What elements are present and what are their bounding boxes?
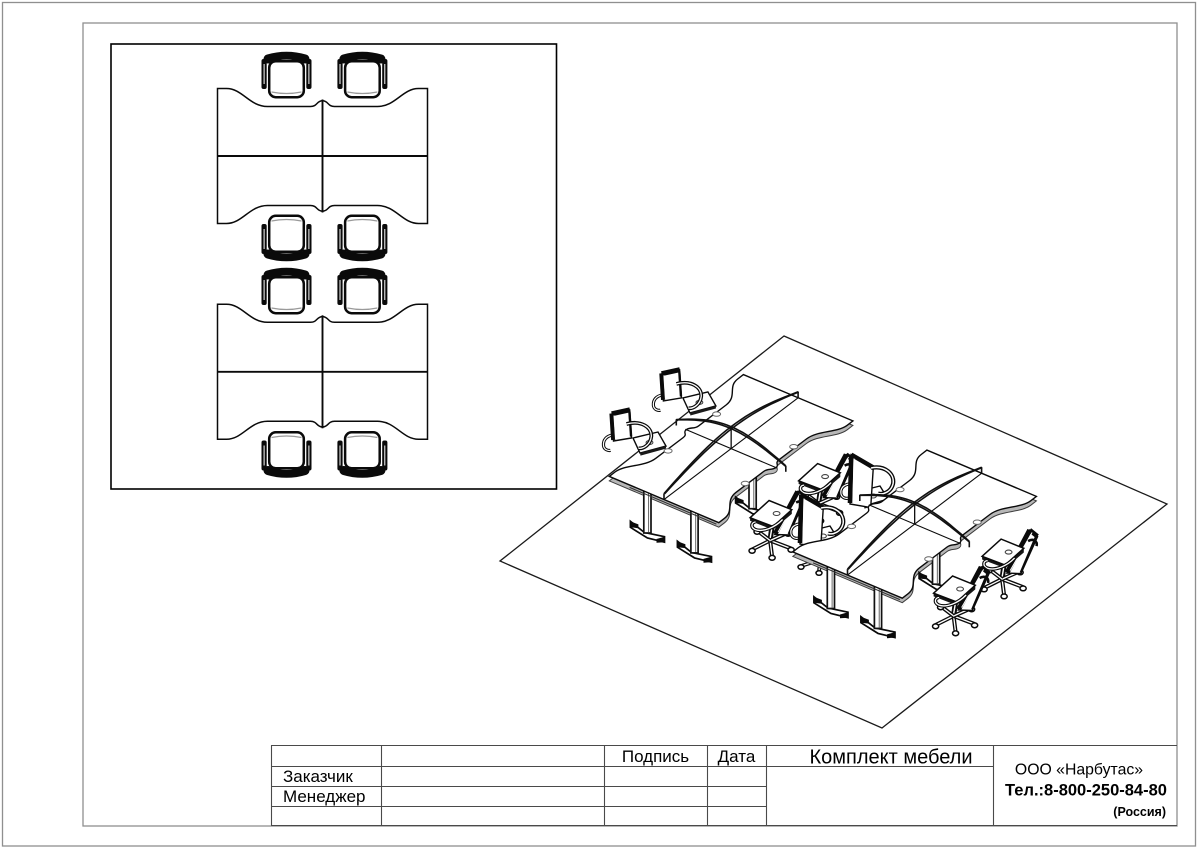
svg-text:Тел.:8-800-250-84-80: Тел.:8-800-250-84-80 [1005,782,1167,800]
svg-text:Комплект мебели: Комплект мебели [809,747,972,769]
svg-text:Менеджер: Менеджер [283,787,365,806]
svg-text:(Россия): (Россия) [1113,805,1166,819]
svg-text:Дата: Дата [718,747,756,766]
svg-text:Подпись: Подпись [622,747,689,766]
svg-text:Заказчик: Заказчик [283,767,353,786]
svg-text:ООО «Нарбутас»: ООО «Нарбутас» [1015,762,1143,779]
